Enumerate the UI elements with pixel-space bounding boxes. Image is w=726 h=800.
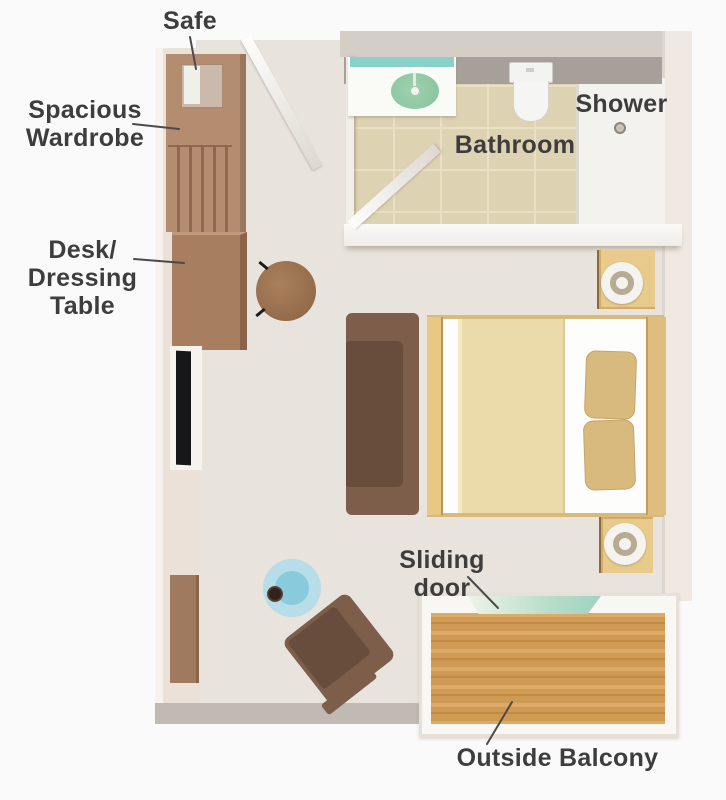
sink-drain-icon [411, 87, 419, 95]
wardrobe-label: Spacious Wardrobe [15, 96, 155, 152]
shower-label: Shower [574, 90, 669, 118]
bed-blanket [458, 319, 565, 513]
lamp-bottom-ring-icon [613, 532, 637, 556]
bottom-wall [155, 703, 421, 724]
vanity-backsplash [350, 57, 454, 67]
safe-door-panel [184, 66, 200, 104]
balcony-label: Outside Balcony [455, 744, 660, 772]
luggage-cabinet [170, 575, 199, 683]
safe-label: Safe [150, 7, 230, 35]
bed-headboard [646, 317, 666, 515]
bed-pillow-bottom [583, 419, 636, 491]
balcony-wood-floor [431, 613, 665, 724]
desk-dressing-table [172, 232, 247, 350]
sliding-door-label: Sliding door [372, 546, 512, 602]
desk-stool [256, 261, 316, 321]
cup-icon [267, 586, 283, 602]
shower-drain-icon [614, 122, 626, 134]
desk-label: Desk/ Dressing Table [15, 236, 150, 320]
sofa-seat [346, 341, 403, 487]
wardrobe-hanging-rail [168, 145, 232, 232]
sink-faucet-icon [413, 73, 416, 86]
toilet-tank [509, 62, 553, 83]
lamp-top-ring-icon [610, 271, 634, 295]
top-wall [340, 31, 692, 57]
tv-screen [176, 351, 191, 466]
bed-pillow-top [584, 350, 637, 420]
toilet-flush-button [526, 68, 534, 72]
floorplan-canvas: Safe Spacious Wardrobe Desk/ Dressing Ta… [0, 0, 726, 800]
bed-footboard [427, 317, 443, 515]
bathroom-bedroom-wall [344, 224, 682, 246]
bathroom-label: Bathroom [450, 131, 580, 159]
toilet-bowl [513, 81, 549, 122]
